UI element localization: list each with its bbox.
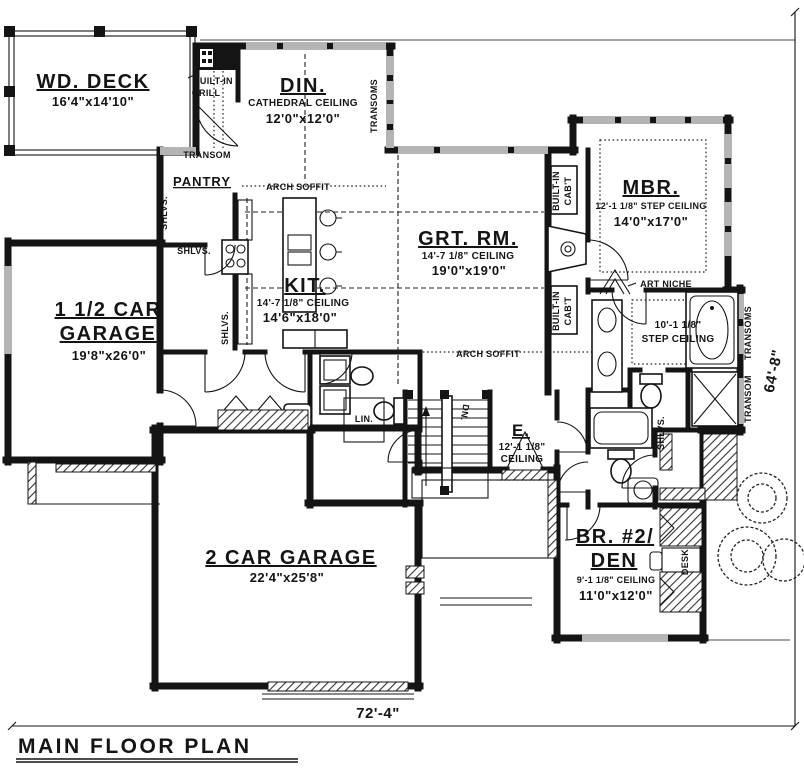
page-title: MAIN FLOOR PLAN bbox=[18, 735, 251, 758]
room-size-bedroom2: 11'0"x12'0" bbox=[579, 588, 653, 603]
annotation-builtin-cab-top-2: CAB'T bbox=[563, 176, 573, 205]
room-size-kitchen: 14'6"x18'0" bbox=[263, 310, 338, 325]
bedroom2-closets bbox=[650, 508, 702, 612]
stool-icon bbox=[320, 244, 336, 260]
room-label-bedroom2-1: BR. #2/ bbox=[576, 526, 654, 548]
room-label-bedroom2-2: DEN bbox=[591, 550, 638, 572]
room-ceiling-dining: CATHEDRAL CEILING bbox=[248, 98, 358, 109]
annotation-arch-soffit-1: ARCH SOFFIT bbox=[266, 182, 330, 192]
kitchen-fixtures bbox=[222, 198, 347, 348]
annotation-transoms-bath: TRANSOMS bbox=[743, 306, 753, 360]
master-bath-fixtures bbox=[592, 292, 738, 426]
room-ceiling-master-bath-1: 10'-1 1/8" bbox=[655, 320, 702, 331]
annotation-desk: DESK bbox=[680, 549, 690, 575]
annotation-shelves-closet: SHLVS. bbox=[656, 416, 666, 450]
room-label-kitchen: KIT. bbox=[284, 275, 326, 297]
room-ceiling-bedroom2: 9'-1 1/8" CEILING bbox=[577, 575, 656, 585]
annotation-transoms-dining: TRANSOMS bbox=[369, 79, 379, 133]
annotation-builtin-cab-bottom-2: CAB'T bbox=[563, 296, 573, 325]
room-size-master: 14'0"x17'0" bbox=[614, 214, 689, 229]
room-label-garage-small-2: GARAGE bbox=[60, 323, 157, 345]
annotation-builtin-grill-1: BUILT-IN bbox=[193, 76, 233, 86]
annotation-transom-bath: TRANSOM bbox=[743, 375, 753, 423]
room-size-garage-large: 22'4"x25'8" bbox=[250, 570, 325, 585]
room-label-great: GRT. RM. bbox=[418, 228, 518, 250]
room-ceiling-master: 12'-1 1/8" STEP CEILING bbox=[595, 201, 706, 211]
tub-icon bbox=[590, 408, 652, 448]
annotation-art-niche: ART NICHE bbox=[640, 279, 692, 289]
annotation-builtin-cab-bottom-1: BUILT-IN bbox=[551, 291, 561, 331]
toilet-icon bbox=[608, 450, 634, 459]
room-size-garage-small: 19'8"x26'0" bbox=[72, 348, 147, 363]
annotation-builtin-cab-top-1: BUILT-IN bbox=[551, 171, 561, 211]
room-label-garage-small-1: 1 1/2 CAR bbox=[55, 299, 162, 321]
title-underline bbox=[16, 759, 298, 762]
annotation-linen: LIN. bbox=[355, 414, 373, 424]
room-size-dining: 12'0"x12'0" bbox=[266, 111, 341, 126]
room-label-dining: DIN. bbox=[280, 75, 326, 97]
room-size-deck: 16'4"x14'10" bbox=[52, 94, 134, 109]
room-label-pantry: PANTRY bbox=[173, 174, 231, 189]
annotation-stairs-down: DN. bbox=[459, 404, 472, 422]
garage-doors bbox=[28, 462, 414, 699]
walkin-closet bbox=[660, 434, 737, 500]
porch bbox=[406, 480, 557, 605]
toilet-icon bbox=[640, 374, 662, 384]
room-ceiling-kitchen: 14'-7 1/8" CEILING bbox=[257, 298, 350, 309]
room-ceiling-master-bath-2: STEP CEILING bbox=[642, 334, 715, 345]
floor-plan-page: WD. DECK 16'4"x14'10" DIN. CATHEDRAL CEI… bbox=[0, 0, 804, 768]
room-ceiling-entry-1: 12'-1 1/8" bbox=[499, 442, 546, 453]
room-ceiling-great: 14'-7 1/8" CEILING bbox=[422, 251, 515, 262]
room-label-garage-large: 2 CAR GARAGE bbox=[205, 547, 376, 569]
room-size-great: 19'0"x19'0" bbox=[432, 263, 507, 278]
room-label-deck: WD. DECK bbox=[36, 71, 149, 93]
annotation-transom-pantry: TRANSOM bbox=[183, 150, 231, 160]
vanity bbox=[592, 300, 622, 392]
powder-sink-icon bbox=[351, 367, 373, 385]
room-ceiling-entry-2: CEILING bbox=[501, 454, 544, 465]
annotation-arch-soffit-2: ARCH SOFFIT bbox=[456, 349, 520, 359]
powder-toilet-icon bbox=[394, 398, 404, 424]
annotation-builtin-grill-2: GRILL bbox=[192, 88, 221, 98]
annotation-shelves-pantry-west: SHLVS. bbox=[159, 196, 169, 230]
dimension-width: 72'-4" bbox=[356, 705, 400, 722]
annotation-shelves-pantry-south: SHLVS. bbox=[177, 246, 211, 256]
room-label-entry: E. bbox=[512, 421, 530, 440]
mud-closets bbox=[218, 396, 308, 430]
dimension-height: 64'-8" bbox=[761, 348, 787, 394]
annotation-shelves-kitchen: SHLVS. bbox=[220, 311, 230, 345]
room-label-master: MBR. bbox=[622, 177, 679, 199]
floor-plan-canvas: WD. DECK 16'4"x14'10" DIN. CATHEDRAL CEI… bbox=[0, 0, 804, 768]
chair-icon bbox=[650, 552, 662, 570]
